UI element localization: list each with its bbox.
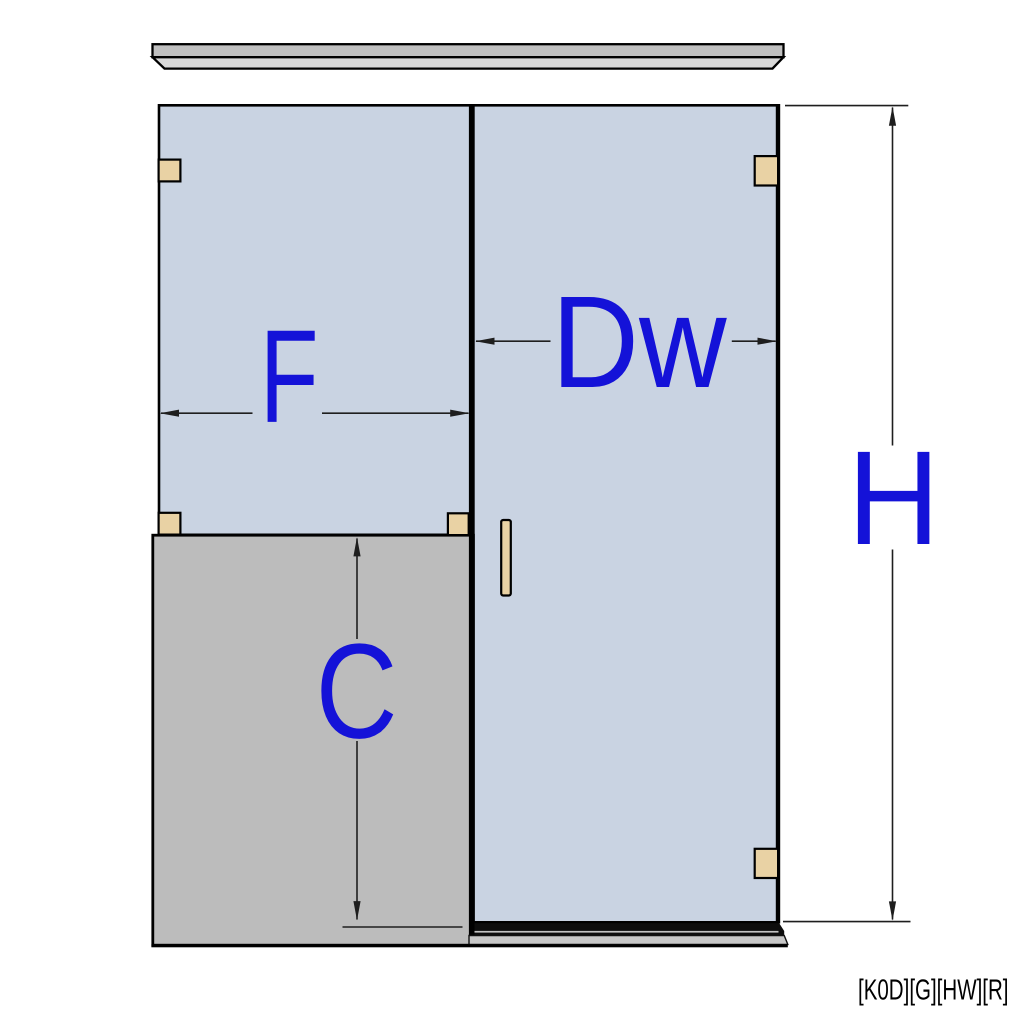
svg-text:[K0D][G][HW][R]: [K0D][G][HW][R] bbox=[858, 974, 1009, 1006]
svg-text:Dw: Dw bbox=[551, 269, 727, 415]
svg-text:F: F bbox=[260, 302, 319, 451]
svg-text:C: C bbox=[316, 616, 398, 766]
svg-text:H: H bbox=[847, 422, 939, 572]
